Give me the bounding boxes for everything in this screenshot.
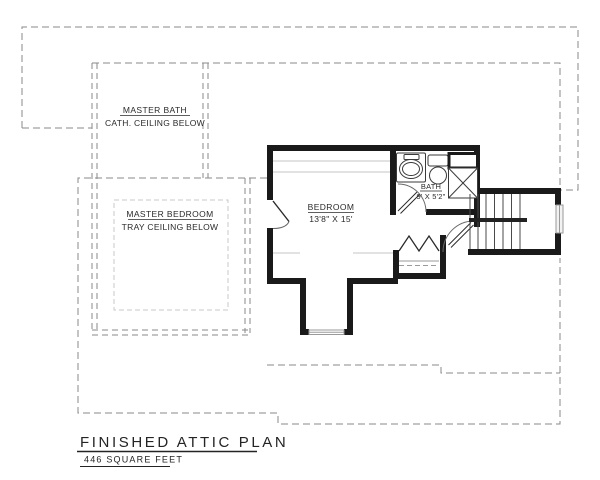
wall-bedroom-north: [267, 145, 480, 151]
master-bath-label: MASTER BATH: [123, 105, 187, 115]
bifold-closet-doors: [399, 236, 439, 251]
toilet-tank: [428, 155, 448, 166]
sink-basin-inner: [403, 163, 420, 176]
master-bath-note: CATH. CEILING BELOW: [105, 118, 205, 128]
wall-dormer-south-left: [300, 329, 309, 335]
linen-closet: [449, 154, 478, 169]
wall-dormer-west: [300, 278, 306, 335]
wall-bedroom-west-lower: [267, 228, 273, 284]
stair-handrail: [469, 218, 527, 222]
stairs: [469, 194, 527, 249]
upper-roof-outline: [22, 27, 578, 190]
wall-bath-west: [390, 145, 396, 215]
bath-door-leaf: [398, 192, 417, 211]
wall-bedroom-west-upper: [267, 145, 273, 200]
wall-dormer-east: [347, 278, 353, 335]
wall-stairs-east-upper: [555, 188, 561, 205]
hall-door-swing: [443, 221, 474, 252]
wall-bedroom-south-right: [347, 278, 398, 284]
master-bedroom-label: MASTER BEDROOM: [126, 209, 213, 219]
plan-title: FINISHED ATTIC PLAN: [80, 434, 288, 451]
hall-door-leaf: [449, 223, 472, 246]
wall-bath-south: [426, 209, 480, 215]
vanity-backsplash: [404, 155, 419, 160]
wall-stairs-north: [474, 188, 561, 194]
floor-plan-canvas: MASTER BATH CATH. CEILING BELOW MASTER B…: [0, 0, 600, 480]
bath-dimensions: 9' X 5'2": [416, 192, 445, 201]
master-bedroom-note: TRAY CEILING BELOW: [122, 222, 219, 232]
bedroom-label: BEDROOM: [308, 202, 355, 212]
plan-area: 446 SQUARE FEET: [84, 455, 183, 465]
title-block: FINISHED ATTIC PLAN 446 SQUARE FEET: [77, 434, 288, 467]
wall-below-double-dash-group: [92, 63, 250, 335]
wall-bedroom-south-left: [267, 278, 305, 284]
wall-stairs-south: [468, 249, 561, 255]
bath-label: BATH: [421, 182, 441, 191]
bedroom-door-leaf: [273, 201, 289, 222]
floor-plan-sheet: MASTER BATH CATH. CEILING BELOW MASTER B…: [0, 0, 600, 480]
bedroom-door-swing: [273, 222, 289, 229]
wall-closet-south: [393, 273, 446, 279]
wall-below-line: [267, 365, 560, 373]
bedroom-dimensions: 13'8" X 15': [309, 214, 353, 224]
